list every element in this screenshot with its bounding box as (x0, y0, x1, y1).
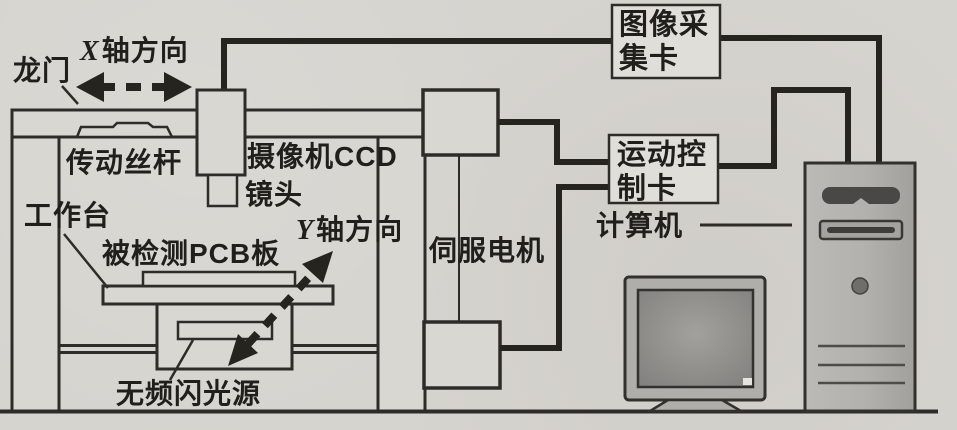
image-capture-card-line1: 图像采 (619, 8, 709, 42)
light-source-label: 无频闪光源 (116, 379, 261, 408)
cable-capture-card-to-tower (720, 38, 879, 165)
image-capture-card-label: 图像采 集卡 (619, 8, 709, 76)
cable-bottom-servo-to-motion-card (500, 187, 609, 348)
lens-label: 镜头 (245, 180, 303, 209)
y-axis-label: Y轴方向 (296, 215, 403, 245)
tower-power-button (852, 278, 868, 294)
computer-label: 计算机 (596, 211, 683, 240)
monitor-screen (638, 290, 753, 387)
x-axis-text: 轴方向 (102, 35, 189, 66)
gantry-leader-line (62, 86, 78, 104)
motion-control-card-label: 运动控 制卡 (617, 138, 707, 206)
camera-ccd-label: 摄像机CCD (247, 142, 398, 171)
camera-ccd-body (197, 90, 245, 175)
x-axis-arrowhead-right (164, 72, 192, 102)
pcb-board (143, 272, 295, 286)
servo-motor-label: 伺服电机 (429, 236, 545, 265)
image-capture-card-line2: 集卡 (619, 42, 709, 76)
worktable-top (103, 286, 333, 304)
y-axis-letter: Y (296, 215, 314, 246)
servo-motor-bottom-box (424, 322, 500, 388)
lens-body (208, 175, 237, 206)
aoi-system-diagram: 龙门 X轴方向 传动丝杆 摄像机CCD 镜头 工作台 被检测PCB板 Y轴方向 … (0, 0, 957, 430)
x-axis-label: X轴方向 (80, 36, 189, 66)
motion-control-card-line1: 运动控 (617, 138, 707, 172)
cable-top-servo-to-motion-card (498, 122, 609, 162)
y-axis-text: 轴方向 (316, 214, 403, 245)
pcb-board-label: 被检测PCB板 (102, 239, 280, 268)
motion-control-card-line2: 制卡 (617, 172, 707, 206)
gantry-label: 龙门 (13, 56, 71, 85)
tower-drive-slot-stripe (827, 227, 895, 233)
right-column (378, 137, 425, 411)
cable-camera-to-capture-card (224, 41, 612, 92)
monitor-stand (650, 400, 741, 411)
left-column (12, 137, 59, 411)
servo-motor-top-box (423, 90, 498, 155)
x-axis-letter: X (80, 36, 100, 67)
x-axis-arrowhead-left (76, 72, 104, 102)
cable-motion-card-to-tower (718, 90, 848, 166)
worktable-label: 工作台 (24, 201, 111, 230)
monitor-power-indicator (743, 378, 752, 385)
drive-screw-label: 传动丝杆 (66, 148, 182, 177)
